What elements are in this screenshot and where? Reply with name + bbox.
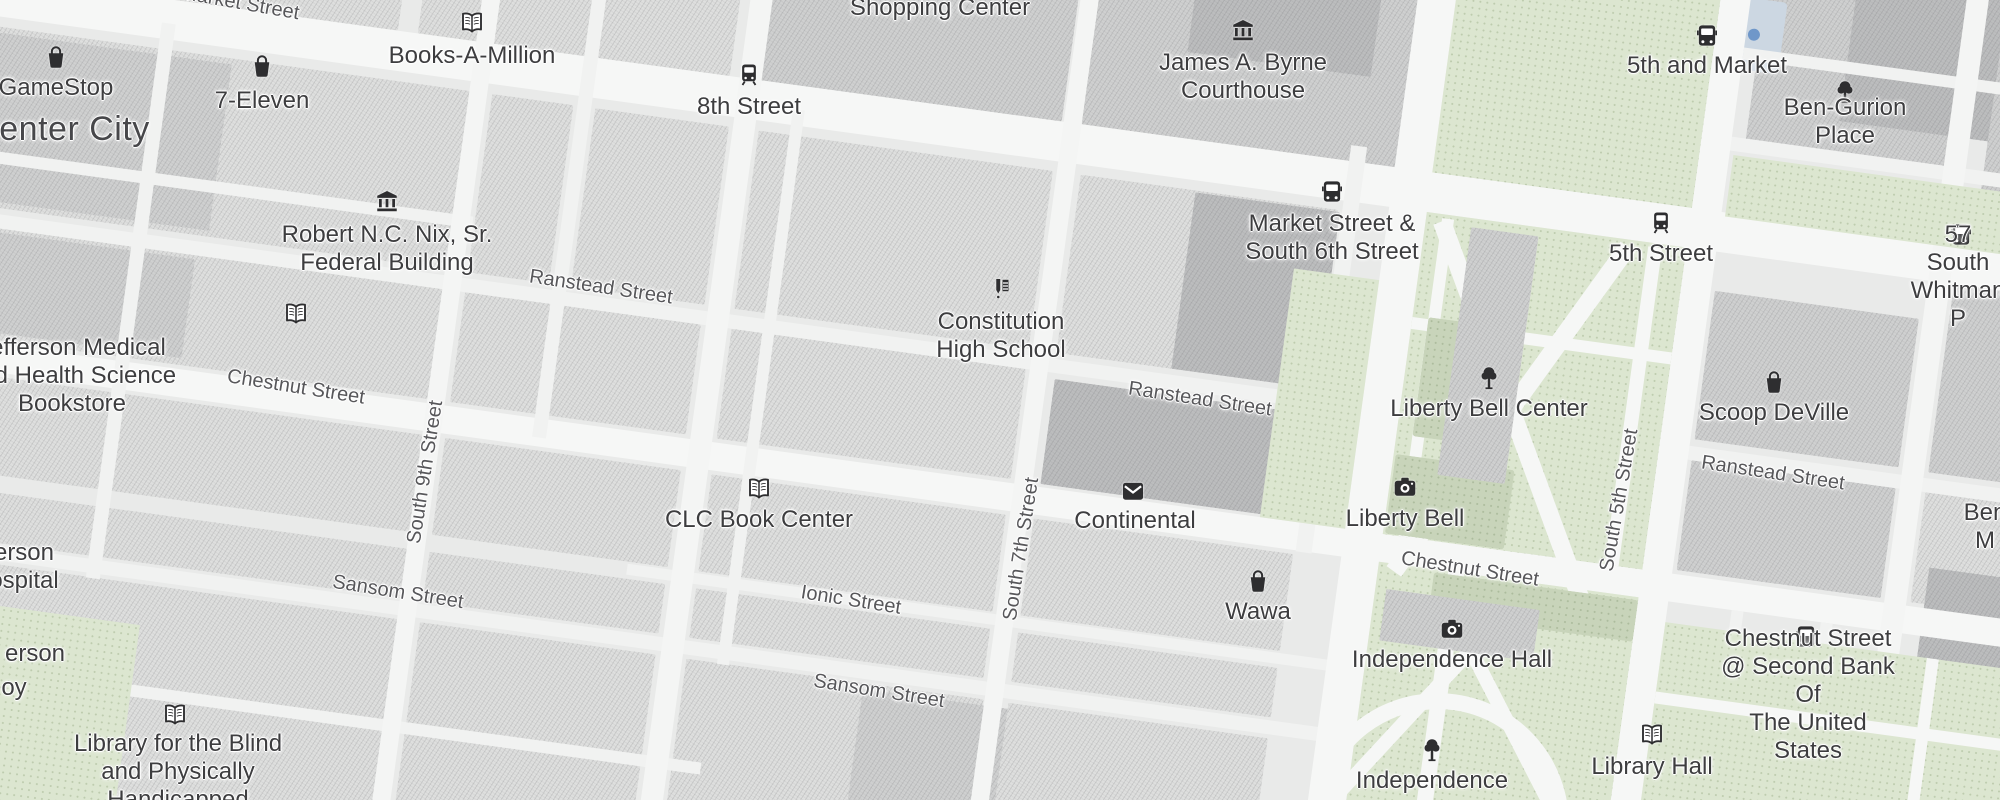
poi-label-wawa[interactable]: Wawa <box>1225 598 1291 626</box>
poi-label-continental[interactable]: Continental <box>1074 507 1195 535</box>
street-label-ranstead-street: Ranstead Street <box>1699 448 1846 497</box>
bag-icon[interactable] <box>1759 367 1789 397</box>
poi-label-independence-hall[interactable]: Independence Hall <box>1352 646 1552 674</box>
bag-icon[interactable] <box>247 51 277 81</box>
bag-icon[interactable] <box>41 42 71 72</box>
book-icon[interactable] <box>281 299 311 329</box>
museum-icon[interactable] <box>1228 16 1258 46</box>
poi-label-constitution-high-school[interactable]: Constitution High School <box>936 308 1065 364</box>
poi-label-james-a-byrne-courthouse[interactable]: James A. Byrne Courthouse <box>1159 49 1327 105</box>
poi-label-erson[interactable]: erson <box>5 640 65 668</box>
tree-icon[interactable] <box>1417 735 1447 765</box>
poi-label-library-hall[interactable]: Library Hall <box>1591 753 1712 781</box>
poi-label-clc-book-center[interactable]: CLC Book Center <box>665 506 853 534</box>
poi-label-chestnut-street-second-bank-of-t[interactable]: Chestnut Street @ Second Bank Of The Uni… <box>1712 625 1904 765</box>
street-label-south-5th-street: South 5th Street <box>1593 426 1646 573</box>
poi-label-57-south-whitman-p[interactable]: 57 South Whitman P <box>1911 221 2000 333</box>
street-label-south-7th-street: South 7th Street <box>996 475 1046 622</box>
poi-label-liberty-bell[interactable]: Liberty Bell <box>1346 505 1465 533</box>
street-label-sansom-street: Sansom Street <box>811 667 946 715</box>
poi-label-erson-ospital[interactable]: erson ospital <box>0 539 59 595</box>
bus-icon[interactable] <box>1317 177 1347 207</box>
school-icon[interactable] <box>986 273 1016 303</box>
tram-icon[interactable] <box>734 60 764 90</box>
poi-label-5th-and-market[interactable]: 5th and Market <box>1627 52 1787 80</box>
camera-icon[interactable] <box>1390 472 1420 502</box>
poi-label-robert-n-c-nix-sr-federal-buildi[interactable]: Robert N.C. Nix, Sr. Federal Building <box>282 221 493 277</box>
tree-icon[interactable] <box>1474 363 1504 393</box>
map-canvas[interactable]: Market StreetShopping CenterGameStopCent… <box>0 0 2000 800</box>
street-label-sansom-street: Sansom Street <box>330 568 465 616</box>
bus-icon[interactable] <box>1692 21 1722 51</box>
poi-label-jefferson-medical-and-health-sci[interactable]: Jefferson Medical and Health Science Boo… <box>0 334 176 418</box>
poi-label-independence[interactable]: Independence <box>1356 767 1508 795</box>
poi-label-8th-street[interactable]: 8th Street <box>697 93 801 121</box>
poi-label-gamestop[interactable]: GameStop <box>0 74 113 102</box>
map-labels-layer: Market StreetShopping CenterGameStopCent… <box>0 0 2000 800</box>
book-icon[interactable] <box>744 474 774 504</box>
street-label-ranstead-street: Ranstead Street <box>1126 374 1273 423</box>
poi-label-books-a-million[interactable]: Books-A-Million <box>389 42 556 70</box>
street-label-ionic-street: Ionic Street <box>799 578 903 621</box>
poi-label-oy[interactable]: oy <box>1 674 26 702</box>
museum-icon[interactable] <box>372 187 402 217</box>
poi-label-liberty-bell-center[interactable]: Liberty Bell Center <box>1390 395 1587 423</box>
area-label-center-city: Center City <box>0 115 150 143</box>
camera-icon[interactable] <box>1437 614 1467 644</box>
book-icon[interactable] <box>160 700 190 730</box>
poi-label-market-street-south-6th-street[interactable]: Market Street & South 6th Street <box>1245 210 1418 266</box>
poi-label-ben-gurion-place[interactable]: Ben-Gurion Place <box>1768 94 1923 150</box>
street-label-chestnut-street: Chestnut Street <box>1399 544 1541 593</box>
poi-label-5th-street[interactable]: 5th Street <box>1609 240 1713 268</box>
poi-label-ben-m[interactable]: Ben M <box>1964 499 2000 555</box>
street-label-south-9th-street: South 9th Street <box>400 398 450 545</box>
poi-label-scoop-deville[interactable]: Scoop DeVille <box>1699 399 1849 427</box>
street-label-market-street: Market Street <box>178 0 301 27</box>
book-icon[interactable] <box>1637 720 1667 750</box>
street-label-ranstead-street: Ranstead Street <box>527 262 674 311</box>
envelope-icon[interactable] <box>1118 476 1148 506</box>
tram-icon[interactable] <box>1646 208 1676 238</box>
street-label-chestnut-street: Chestnut Street <box>225 362 367 411</box>
poi-label-shopping-center[interactable]: Shopping Center <box>850 0 1030 22</box>
book-icon[interactable] <box>457 8 487 38</box>
poi-label-7-eleven[interactable]: 7-Eleven <box>215 87 310 115</box>
poi-label-library-for-the-blind-and-physic[interactable]: Library for the Blind and Physically Han… <box>74 730 282 800</box>
bag-icon[interactable] <box>1243 566 1273 596</box>
